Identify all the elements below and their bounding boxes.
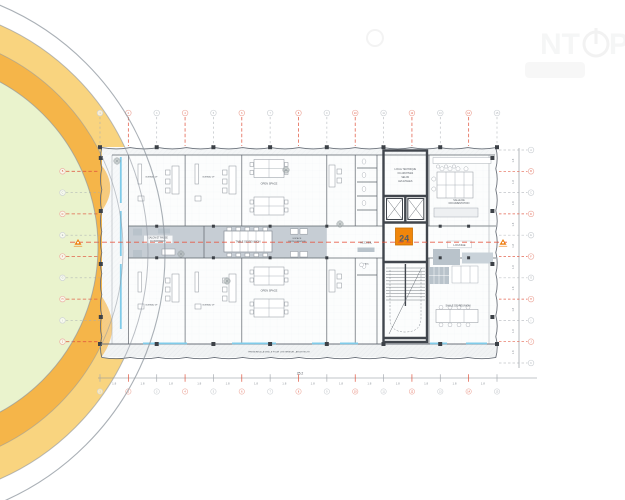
room-label-salon: DU BATIMENT [150, 240, 166, 243]
room-label-accueil: ACCUEIL [360, 240, 373, 244]
bay-dimension-label: 1.8 [511, 180, 515, 184]
total-dimension-label: 25.2 [297, 371, 304, 375]
bay-dimension-label: 1.8 [424, 382, 428, 386]
floor-plan-drawing: 24 [0, 0, 625, 500]
watermark-text: PL [609, 28, 625, 61]
bay-dimension-label: 1.8 [112, 382, 116, 386]
grid-bubble-label: H [62, 298, 64, 301]
asc-symbol [360, 263, 364, 267]
plant-icon [178, 251, 184, 257]
building: 24 [98, 145, 499, 359]
grid-bubble-label: C [530, 192, 532, 195]
plant-icon [114, 158, 120, 164]
bay-dimension-label: 1.8 [511, 243, 515, 247]
grid-bubble-label: D [530, 213, 532, 216]
dimension-right: A1.8B1.8C1.8D1.8E1.8F1.8G1.8H1.8I1.8J1.8… [499, 147, 534, 368]
plant-icon [337, 221, 343, 227]
bay-dimension-label: 1.8 [452, 382, 456, 386]
dimension-bottom: 11.821.831.841.851.861.871.881.891.8101.… [97, 374, 537, 394]
bay-dimension-label: 1.8 [511, 265, 515, 269]
bay-dimension-label: 1.8 [396, 382, 400, 386]
room-label-local-technique: SELON [401, 177, 409, 179]
room-label-bureau: BUREAU 2P [146, 304, 158, 307]
grid-bubble-label: C [62, 192, 64, 195]
bay-dimension-label: 1.8 [197, 382, 201, 386]
bay-dimension-label: 1.8 [254, 382, 258, 386]
grid-bubble-label: G [530, 277, 532, 280]
bay-dimension-label: 1.8 [511, 307, 515, 311]
room-label-local-technique: LOCAL TECHNIQUE [395, 168, 417, 171]
room-label-bureau: BUREAU 2P [203, 304, 215, 307]
room-label-salon: SALON ET PAUSE [148, 237, 168, 240]
column-grid-top: 123456789101112131415 [97, 110, 500, 146]
plan-note: PRENDRE A LA GRILLE POUR L'EXTERIEUR - A… [248, 350, 310, 353]
bay-dimension-label: 1.8 [169, 382, 173, 386]
watermark-text: NT [540, 28, 580, 61]
grid-bubble-label: G [62, 277, 64, 280]
bay-dimension-label: 1.8 [226, 382, 230, 386]
room-label-local-technique: OU ARCHIVES [397, 172, 413, 175]
grid-bubble-label: D [62, 213, 64, 216]
facade-bottom [102, 357, 496, 358]
room-label-documentation: DOCUMENTATION [449, 202, 470, 205]
bay-dimension-label: 1.8 [481, 382, 485, 386]
power-icon [584, 28, 608, 56]
bay-dimension-label: 1.8 [511, 286, 515, 290]
bay-dimension-label: 1.8 [311, 382, 315, 386]
room-label-lounge: LOUNGE [453, 243, 465, 247]
grid-bubble-label: H [530, 298, 532, 301]
room-label-table-reunion: TABLE DE REUNION [235, 240, 260, 244]
room-label-bureau: BUREAU 2P [203, 176, 215, 179]
plant-icon [224, 278, 230, 284]
bay-dimension-label: 1.8 [141, 382, 145, 386]
drawing-canvas: 24 [0, 0, 625, 500]
bay-dimension-label: 1.8 [367, 382, 371, 386]
room-label-bureau: BUREAU 2P [146, 176, 158, 179]
facade-right [496, 148, 497, 358]
room-label-asc: ASC [365, 263, 370, 266]
room-label-repro: REPROGRAPHIE [288, 240, 306, 243]
plant-icon [283, 167, 289, 173]
bay-dimension-label: 1.8 [511, 329, 515, 333]
room-label-open-space: OPEN SPACE [261, 181, 278, 185]
bay-dimension-label: 1.8 [511, 222, 515, 226]
room-label-repro: ESPACE [293, 237, 302, 240]
watermark: NT PL [367, 28, 625, 78]
bay-dimension-label: 1.8 [511, 201, 515, 205]
room-label-local-technique: LES ETAGES [398, 180, 413, 183]
room-label-open-space: OPEN SPACE [261, 288, 278, 292]
bay-dimension-label: 1.8 [511, 158, 515, 162]
bay-dimension-label: 1.8 [339, 382, 343, 386]
bay-dimension-label: 1.8 [282, 382, 286, 386]
bay-dimension-label: 1.8 [511, 350, 515, 354]
room-label-salle-reunion: SALLE DE REUNION [445, 303, 470, 307]
